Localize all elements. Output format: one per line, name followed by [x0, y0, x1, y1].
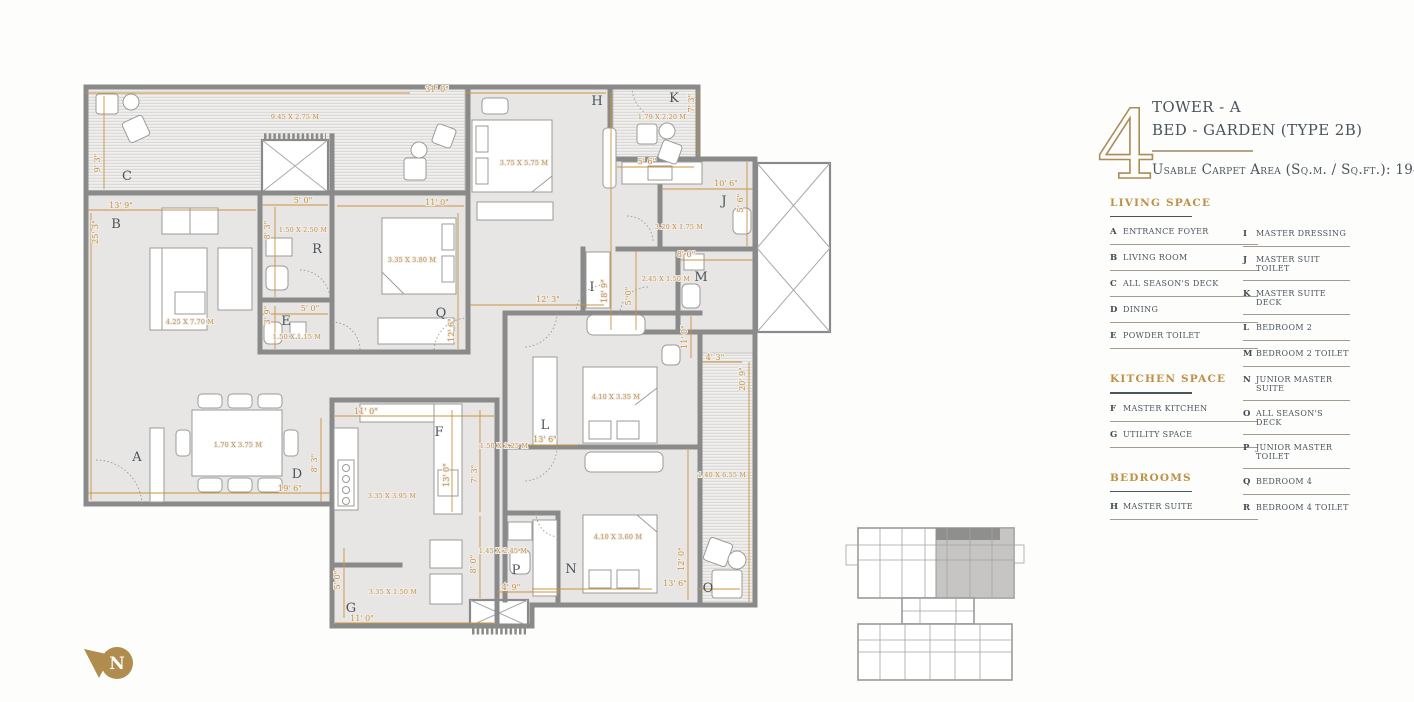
room-letter-label: N: [565, 562, 576, 577]
legend-item-key: D: [1110, 305, 1123, 315]
dimension-label: 11' 0": [354, 407, 378, 416]
legend-item-M: MBEDROOM 2 TOILET: [1243, 341, 1350, 367]
washer: [430, 540, 462, 568]
pillow: [589, 570, 611, 588]
dimension-label: 31' 0": [425, 85, 449, 94]
legend-heading: BEDROOMS: [1110, 472, 1258, 484]
legend-item-R: RBEDROOM 4 TOILET: [1243, 495, 1350, 520]
legend-item-label: MASTER SUIT TOILET: [1256, 255, 1350, 273]
staircase: [757, 163, 830, 332]
room-letter-label: Q: [436, 306, 447, 321]
deck-chair: [712, 570, 742, 598]
legend-item-J: JMASTER SUIT TOILET: [1243, 247, 1350, 281]
dimension-label: 11' 0": [680, 325, 689, 349]
legend-item-A: AENTRANCE FOYER: [1110, 219, 1258, 245]
dimension-label: 12' 6": [447, 318, 456, 342]
dimension-label: 18' 9": [600, 279, 609, 303]
room-letter-label: M: [694, 270, 707, 285]
legend-item-L: LBEDROOM 2: [1243, 315, 1350, 341]
legend-column-1: LIVING SPACEAENTRANCE FOYERBLIVING ROOMC…: [1110, 197, 1258, 520]
legend-item-label: BEDROOM 4 TOILET: [1256, 503, 1349, 512]
room-size-label: 3.35 X 1.50 M: [369, 588, 418, 596]
dimension-label: 7' 3": [687, 94, 696, 113]
key-plan: [846, 528, 1024, 680]
room-letter-label: G: [346, 601, 356, 616]
deck-table: [123, 94, 139, 110]
deck-chair: [404, 158, 426, 180]
dimension-label: 25' 3": [91, 220, 100, 244]
dimension-label: 20' 9": [738, 367, 747, 391]
pillow: [476, 158, 488, 184]
deck-chair: [96, 94, 118, 114]
legend-item-label: BEDROOM 2 TOILET: [1256, 349, 1349, 358]
room-size-label: 3.75 X 5.75 M: [500, 159, 549, 167]
legend-item-key: B: [1110, 253, 1123, 263]
dimension-label: 5' 0": [301, 304, 320, 313]
legend-item-E: EPOWDER TOILET: [1110, 323, 1258, 349]
dimension-label: 3' 9": [263, 306, 272, 325]
room-size-label: 1.45 X 2.45 M: [479, 547, 528, 555]
room-letter-label: K: [669, 91, 679, 106]
legend-item-label: UTILITY SPACE: [1123, 430, 1192, 439]
title-divider: [1152, 150, 1253, 152]
legend-item-label: ENTRANCE FOYER: [1123, 227, 1209, 236]
legend-item-key: G: [1110, 430, 1123, 440]
legend-item-label: JUNIOR MASTER SUITE: [1256, 375, 1350, 393]
dimension-label: 5' 0": [333, 571, 342, 590]
legend-item-key: P: [1243, 443, 1256, 453]
legend-item-key: E: [1110, 331, 1123, 341]
wardrobe: [378, 318, 454, 344]
room-size-label: 1.50 X 2.50 M: [279, 226, 328, 234]
room-size-label: 3.35 X 3.95 M: [368, 492, 417, 500]
room-letter-label: F: [434, 425, 443, 440]
dimension-label: 8' 0": [469, 555, 478, 574]
legend-item-label: ALL SEASON'S DECK: [1123, 279, 1219, 288]
console-table: [150, 428, 164, 502]
north-arrow: N: [84, 647, 133, 679]
legend-item-key: R: [1243, 503, 1256, 513]
washer: [430, 574, 462, 604]
room-size-label: 1.50 X 1.15 M: [273, 333, 322, 341]
room-letter-label: P: [512, 563, 521, 578]
dining-chair: [284, 430, 298, 456]
room-size-label: 4.10 X 3.35 M: [592, 393, 641, 401]
legend-item-key: L: [1243, 323, 1256, 333]
dimension-label: 13' 0": [442, 463, 451, 487]
chaise: [218, 248, 252, 310]
dining-chair: [198, 478, 222, 492]
deck-k: [613, 88, 698, 158]
room-size-label: 1.50 X 2.25 M: [480, 442, 529, 450]
legend-item-P: PJUNIOR MASTER TOILET: [1243, 435, 1350, 469]
legend-item-key: J: [1243, 255, 1256, 265]
legend-item-O: OALL SEASON'S DECK: [1243, 401, 1350, 435]
room-letter-label: L: [541, 418, 550, 433]
room-letter-label: C: [122, 169, 132, 184]
room-size-label: 3.35 X 3.80 M: [388, 256, 437, 264]
washbasin: [508, 522, 532, 540]
legend-heading-rule: [1110, 216, 1192, 217]
legend-item-key: Q: [1243, 477, 1256, 487]
dimension-label: 9' 3": [93, 154, 102, 173]
legend-item-key: H: [1110, 502, 1123, 512]
dresser: [603, 128, 616, 188]
room-size-label: 4.25 X 7.70 M: [166, 318, 215, 326]
dimension-label: 13' 9": [109, 201, 133, 210]
wc: [682, 284, 700, 308]
tower-title: TOWER - A: [1152, 96, 1414, 119]
dimension-label: 10' 6": [714, 179, 738, 188]
floor-plan-page: 9.45 X 2.75 M1.50 X 2.50 M1.50 X 1.15 M4…: [0, 0, 1414, 702]
dimension-label: 11' 0": [425, 198, 449, 207]
dimension-label: 5' 6": [638, 157, 657, 166]
legend-column-2: IMASTER DRESSINGJMASTER SUIT TOILETKMAST…: [1243, 221, 1350, 520]
room-size-label: 1.70 X 3.75 M: [214, 441, 263, 449]
nightstand: [482, 98, 508, 114]
room-letter-label: D: [292, 467, 302, 482]
unit-type-title: BED - GARDEN (TYPE 2B): [1152, 119, 1414, 142]
legend-heading: LIVING SPACE: [1110, 197, 1258, 209]
dining-chair: [228, 394, 252, 408]
legend-item-key: O: [1243, 409, 1256, 419]
room-letter-label: J: [719, 194, 726, 209]
dimension-label: 8' 3": [310, 454, 319, 473]
unit-numeral: 4: [1098, 92, 1156, 192]
legend-item-label: JUNIOR MASTER TOILET: [1256, 443, 1350, 461]
legend-item-K: KMASTER SUITE DECK: [1243, 281, 1350, 315]
legend-item-label: MASTER DRESSING: [1256, 229, 1346, 238]
legend-item-label: MASTER SUITE: [1123, 502, 1193, 511]
legend-item-label: MASTER KITCHEN: [1123, 404, 1208, 413]
dimension-label: 8' 0": [677, 250, 696, 259]
dimension-label: 8' 3": [263, 221, 272, 240]
washbasin: [266, 238, 292, 256]
dimension-label: 5' 6": [736, 194, 745, 213]
pillow: [589, 421, 611, 439]
legend-item-key: N: [1243, 375, 1256, 385]
dimension-label: 19' 6": [278, 484, 302, 493]
legend-item-key: C: [1110, 279, 1123, 289]
dimension-label: 7' 3": [470, 465, 479, 484]
deck-chair: [637, 124, 657, 144]
dining-chair: [228, 478, 252, 492]
legend-item-key: I: [1243, 229, 1256, 239]
dimension-label: 13' 6": [533, 435, 557, 444]
pillow: [442, 224, 454, 250]
deck-table: [659, 123, 675, 139]
room-size-label: 1.79 X 2.20 M: [638, 113, 687, 121]
legend-item-D: DDINING: [1110, 297, 1258, 323]
room-size-label: 2.45 X 1.50 M: [642, 275, 691, 283]
legend-item-C: CALL SEASON'S DECK: [1110, 271, 1258, 297]
dining-chair: [258, 394, 282, 408]
room-letter-label: E: [281, 314, 291, 329]
room-letter-label: O: [703, 581, 714, 596]
legend-item-label: DINING: [1123, 305, 1158, 314]
dimension-label: 12' 0": [677, 547, 686, 571]
pillow: [476, 126, 488, 152]
coffee-table: [175, 292, 205, 314]
dimension-label: 5' 0": [294, 196, 313, 205]
pillow: [617, 421, 639, 439]
legend-item-Q: QBEDROOM 4: [1243, 469, 1350, 495]
room-letter-label: A: [131, 450, 142, 465]
legend-item-label: BEDROOM 4: [1256, 477, 1312, 486]
deck-table: [411, 142, 427, 158]
pillow: [617, 570, 639, 588]
wc: [266, 266, 288, 290]
dining-chair: [198, 394, 222, 408]
kitchen-island: [434, 404, 462, 514]
dimension-label: 4' 9": [502, 583, 521, 592]
legend-item-B: BLIVING ROOM: [1110, 245, 1258, 271]
room-letter-label: B: [111, 217, 121, 232]
deck-table: [728, 551, 746, 569]
legend-heading: KITCHEN SPACE: [1110, 373, 1258, 385]
legend-heading-rule: [1110, 392, 1192, 393]
room-size-label: 3.20 X 1.75 M: [655, 223, 704, 231]
pillow: [442, 256, 454, 282]
north-label: N: [109, 654, 125, 674]
legend-item-key: M: [1243, 349, 1256, 359]
room-size-label: 1.40 X 6.55 M: [698, 471, 747, 479]
legend-item-label: LIVING ROOM: [1123, 253, 1188, 262]
legend-item-label: MASTER SUITE DECK: [1256, 289, 1350, 307]
carpet-area-text: Usable Carpet Area (Sq.m. / Sq.ft.): 194…: [1152, 162, 1414, 178]
washbasin: [648, 166, 672, 180]
legend-item-F: FMASTER KITCHEN: [1110, 396, 1258, 422]
room-letter-label: R: [312, 242, 323, 257]
dimension-label: 13' 6": [663, 579, 687, 588]
legend-item-key: F: [1110, 404, 1123, 414]
dining-chair: [176, 430, 190, 456]
legend-item-key: K: [1243, 289, 1256, 299]
room-letter-label: H: [591, 94, 602, 109]
desk: [585, 452, 663, 472]
dimension-label: 5' 0": [624, 287, 633, 306]
legend-item-N: NJUNIOR MASTER SUITE: [1243, 367, 1350, 401]
dimension-label: 4' 3": [706, 353, 725, 362]
room-letter-label: I: [589, 280, 594, 295]
legend-item-G: GUTILITY SPACE: [1110, 422, 1258, 448]
dimension-label: 12' 3": [536, 295, 560, 304]
legend-item-label: BEDROOM 2: [1256, 323, 1312, 332]
legend-item-label: POWDER TOILET: [1123, 331, 1200, 340]
legend-heading-rule: [1110, 491, 1192, 492]
unit-number: 4: [1098, 92, 1156, 192]
legend-item-I: IMASTER DRESSING: [1243, 221, 1350, 247]
room-size-label: 9.45 X 2.75 M: [271, 113, 320, 121]
side-table: [662, 345, 680, 365]
room-size-label: 4.10 X 3.60 M: [594, 533, 643, 541]
wardrobe: [533, 520, 557, 596]
legend-item-key: A: [1110, 227, 1123, 237]
legend-item-label: ALL SEASON'S DECK: [1256, 409, 1350, 427]
bench: [477, 202, 553, 220]
legend-item-H: HMASTER SUITE: [1110, 494, 1258, 520]
